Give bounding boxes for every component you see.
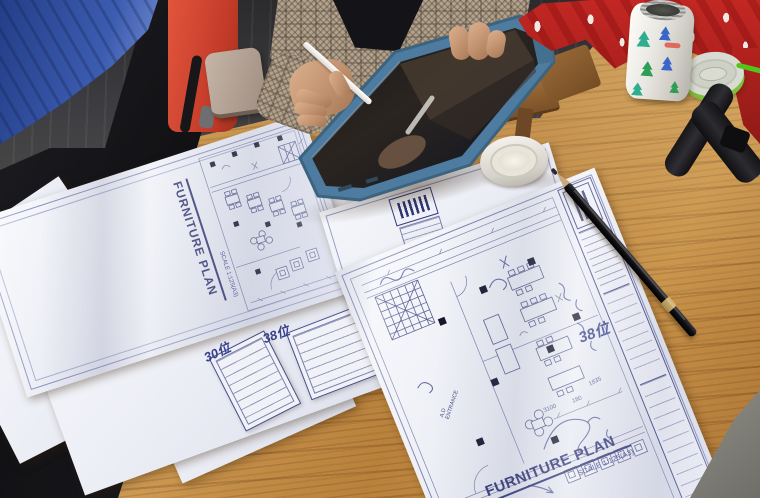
thermos-steel-neck	[639, 0, 686, 22]
coral-sticker	[664, 42, 680, 48]
tree-sticker-6	[669, 81, 680, 94]
tree-sticker-4	[661, 56, 674, 71]
tree-sticker-5	[631, 82, 644, 96]
thermos-opening	[646, 3, 681, 17]
white-thermos	[625, 2, 696, 102]
tree-sticker-2	[659, 26, 672, 41]
tree-sticker-1	[636, 30, 651, 47]
right-hand-finger-3	[297, 114, 328, 127]
tree-sticker-3	[640, 61, 654, 77]
photo-scene: 30位 38位 FURNITURE PLAN SCALE 1:125(A3)	[0, 0, 760, 498]
